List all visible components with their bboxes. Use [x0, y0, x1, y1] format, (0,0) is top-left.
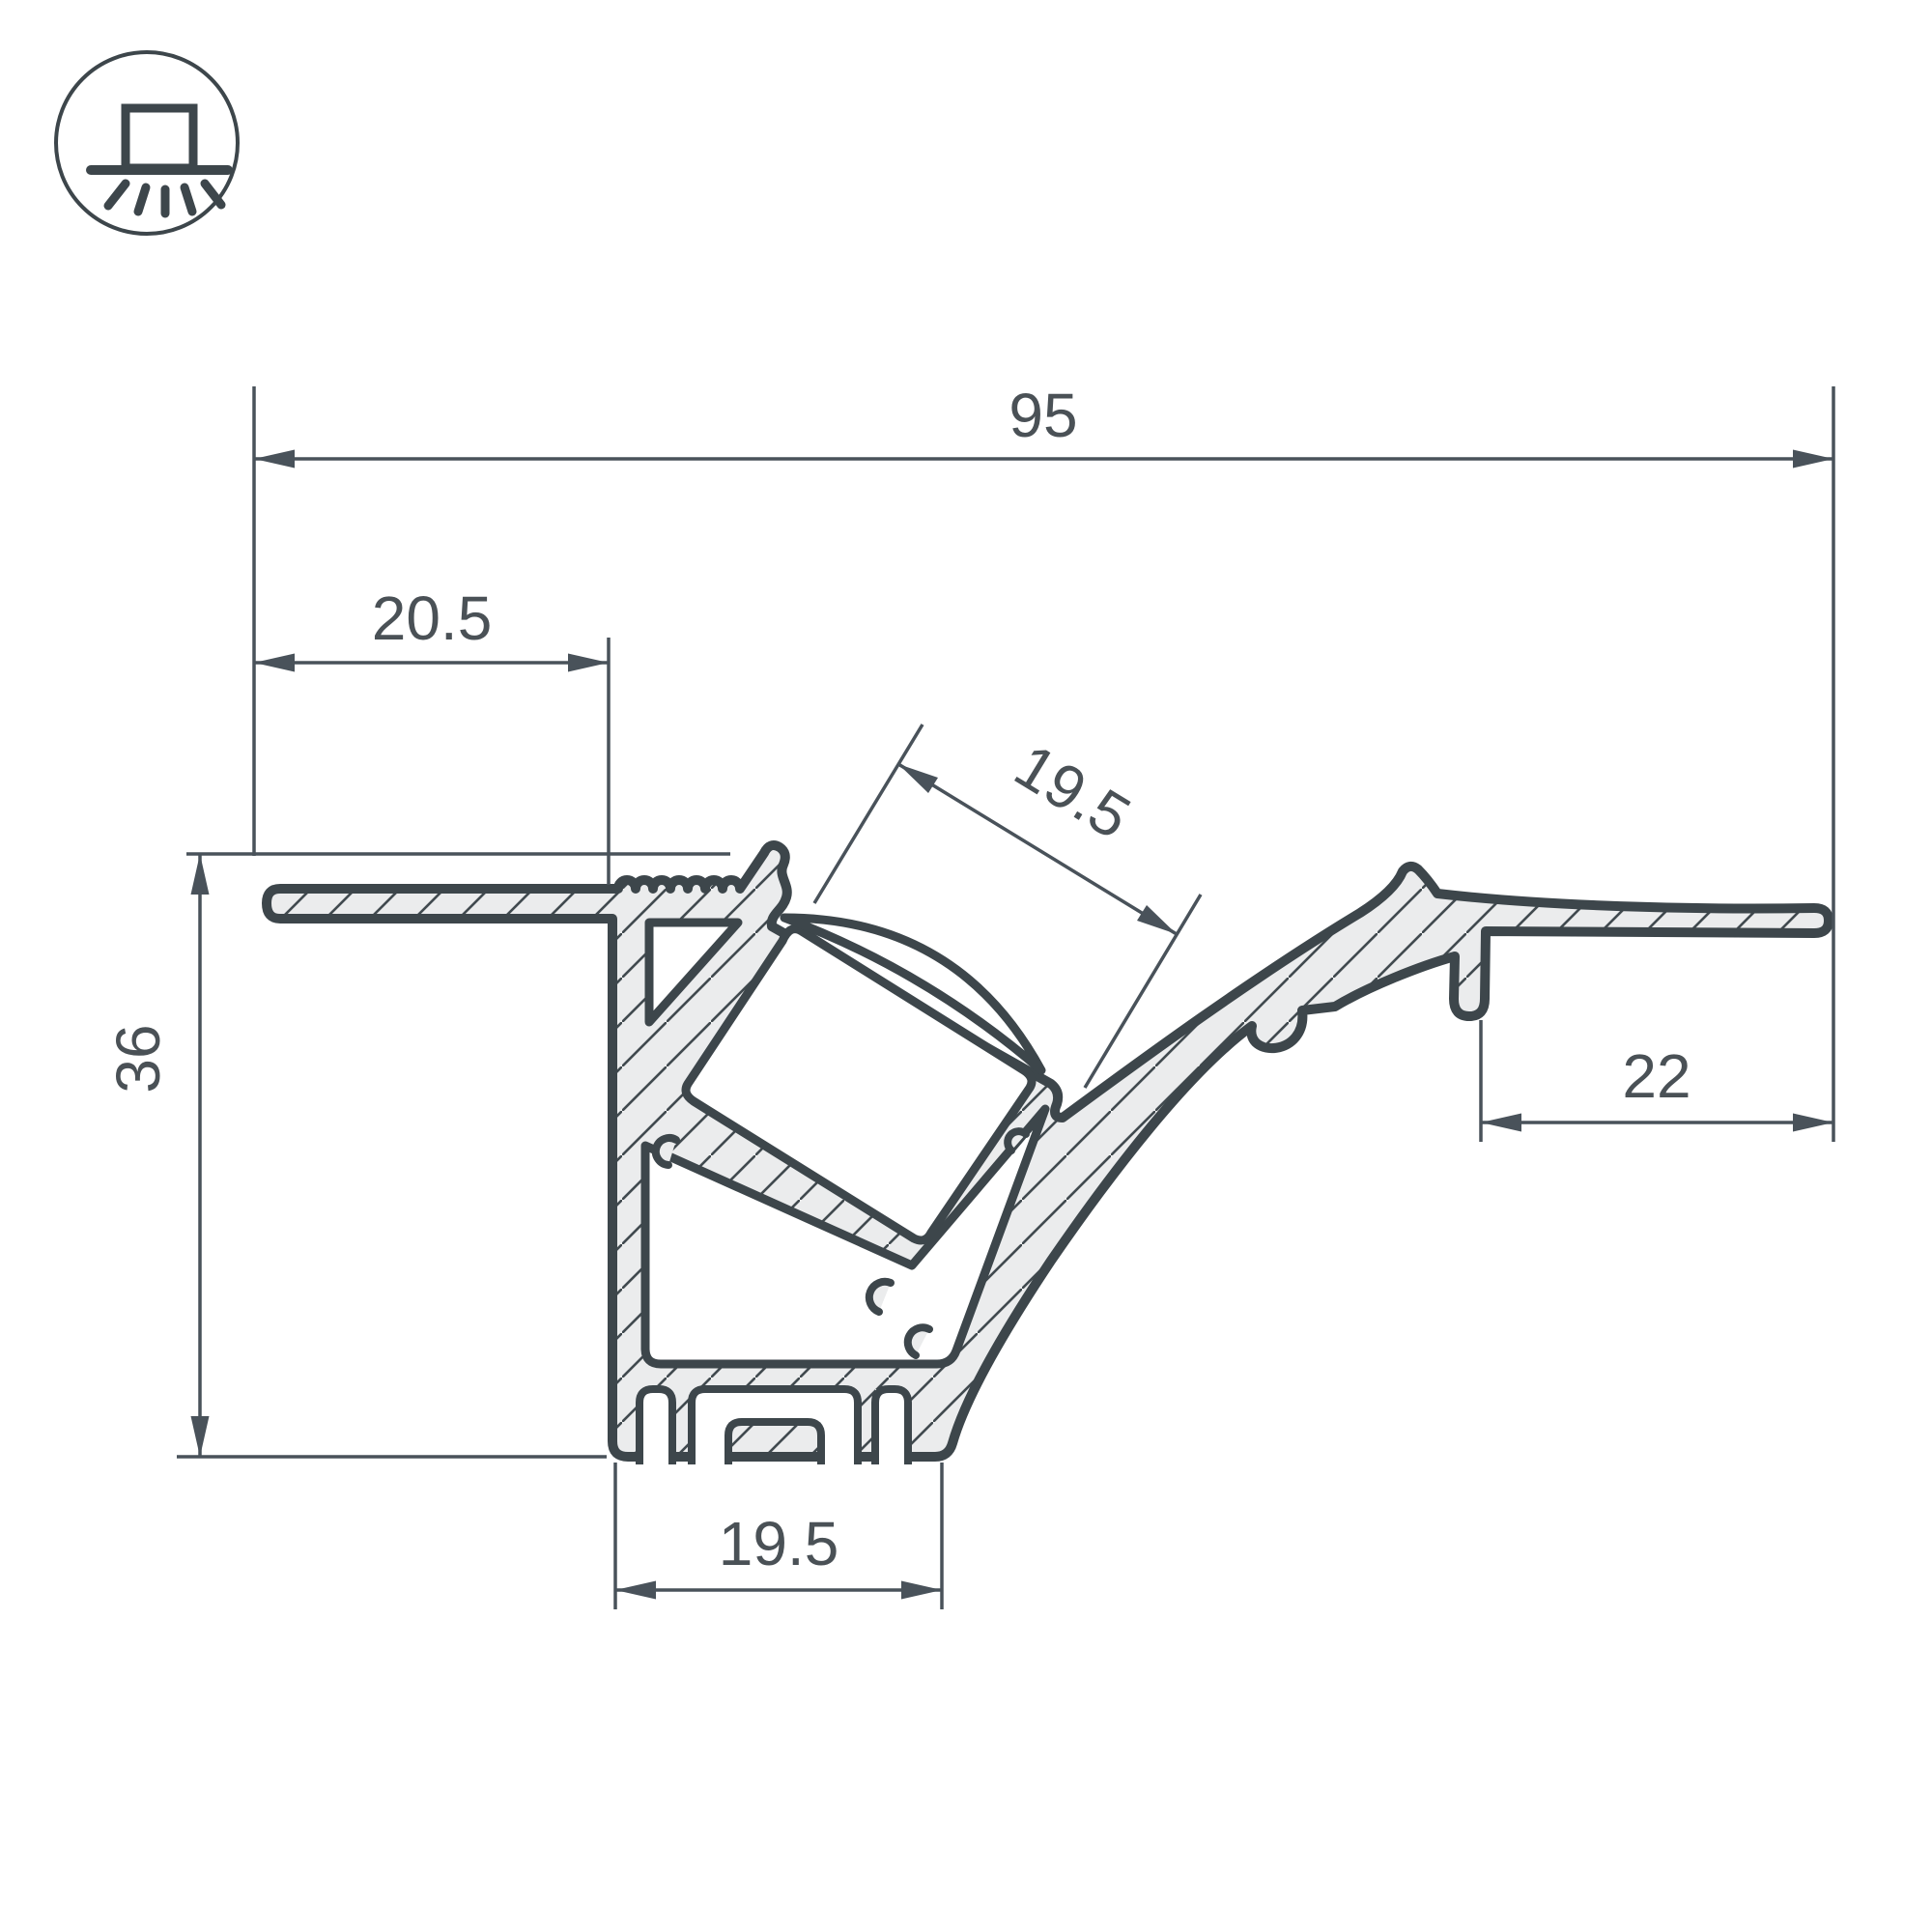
dim-left-flange-offset: 20.5	[372, 583, 493, 653]
profile-drawing-svg: 95 20.5 36 19.5 22 19.5	[0, 0, 1932, 1932]
recessed-light-icon	[56, 52, 238, 234]
dimension-annotations	[177, 386, 1833, 1609]
dim-overall-width: 95	[1009, 381, 1077, 450]
technical-drawing-page: 95 20.5 36 19.5 22 19.5	[0, 0, 1932, 1932]
dim-base-width: 19.5	[719, 1509, 839, 1578]
dim-right-flange-width: 22	[1622, 1041, 1690, 1111]
dim-channel-opening-width: 19.5	[1004, 730, 1143, 852]
dim-overall-height: 36	[103, 1024, 173, 1093]
ext-diag-1	[814, 724, 923, 903]
profile-cross-section	[267, 845, 1829, 1468]
light-rays	[108, 184, 221, 213]
